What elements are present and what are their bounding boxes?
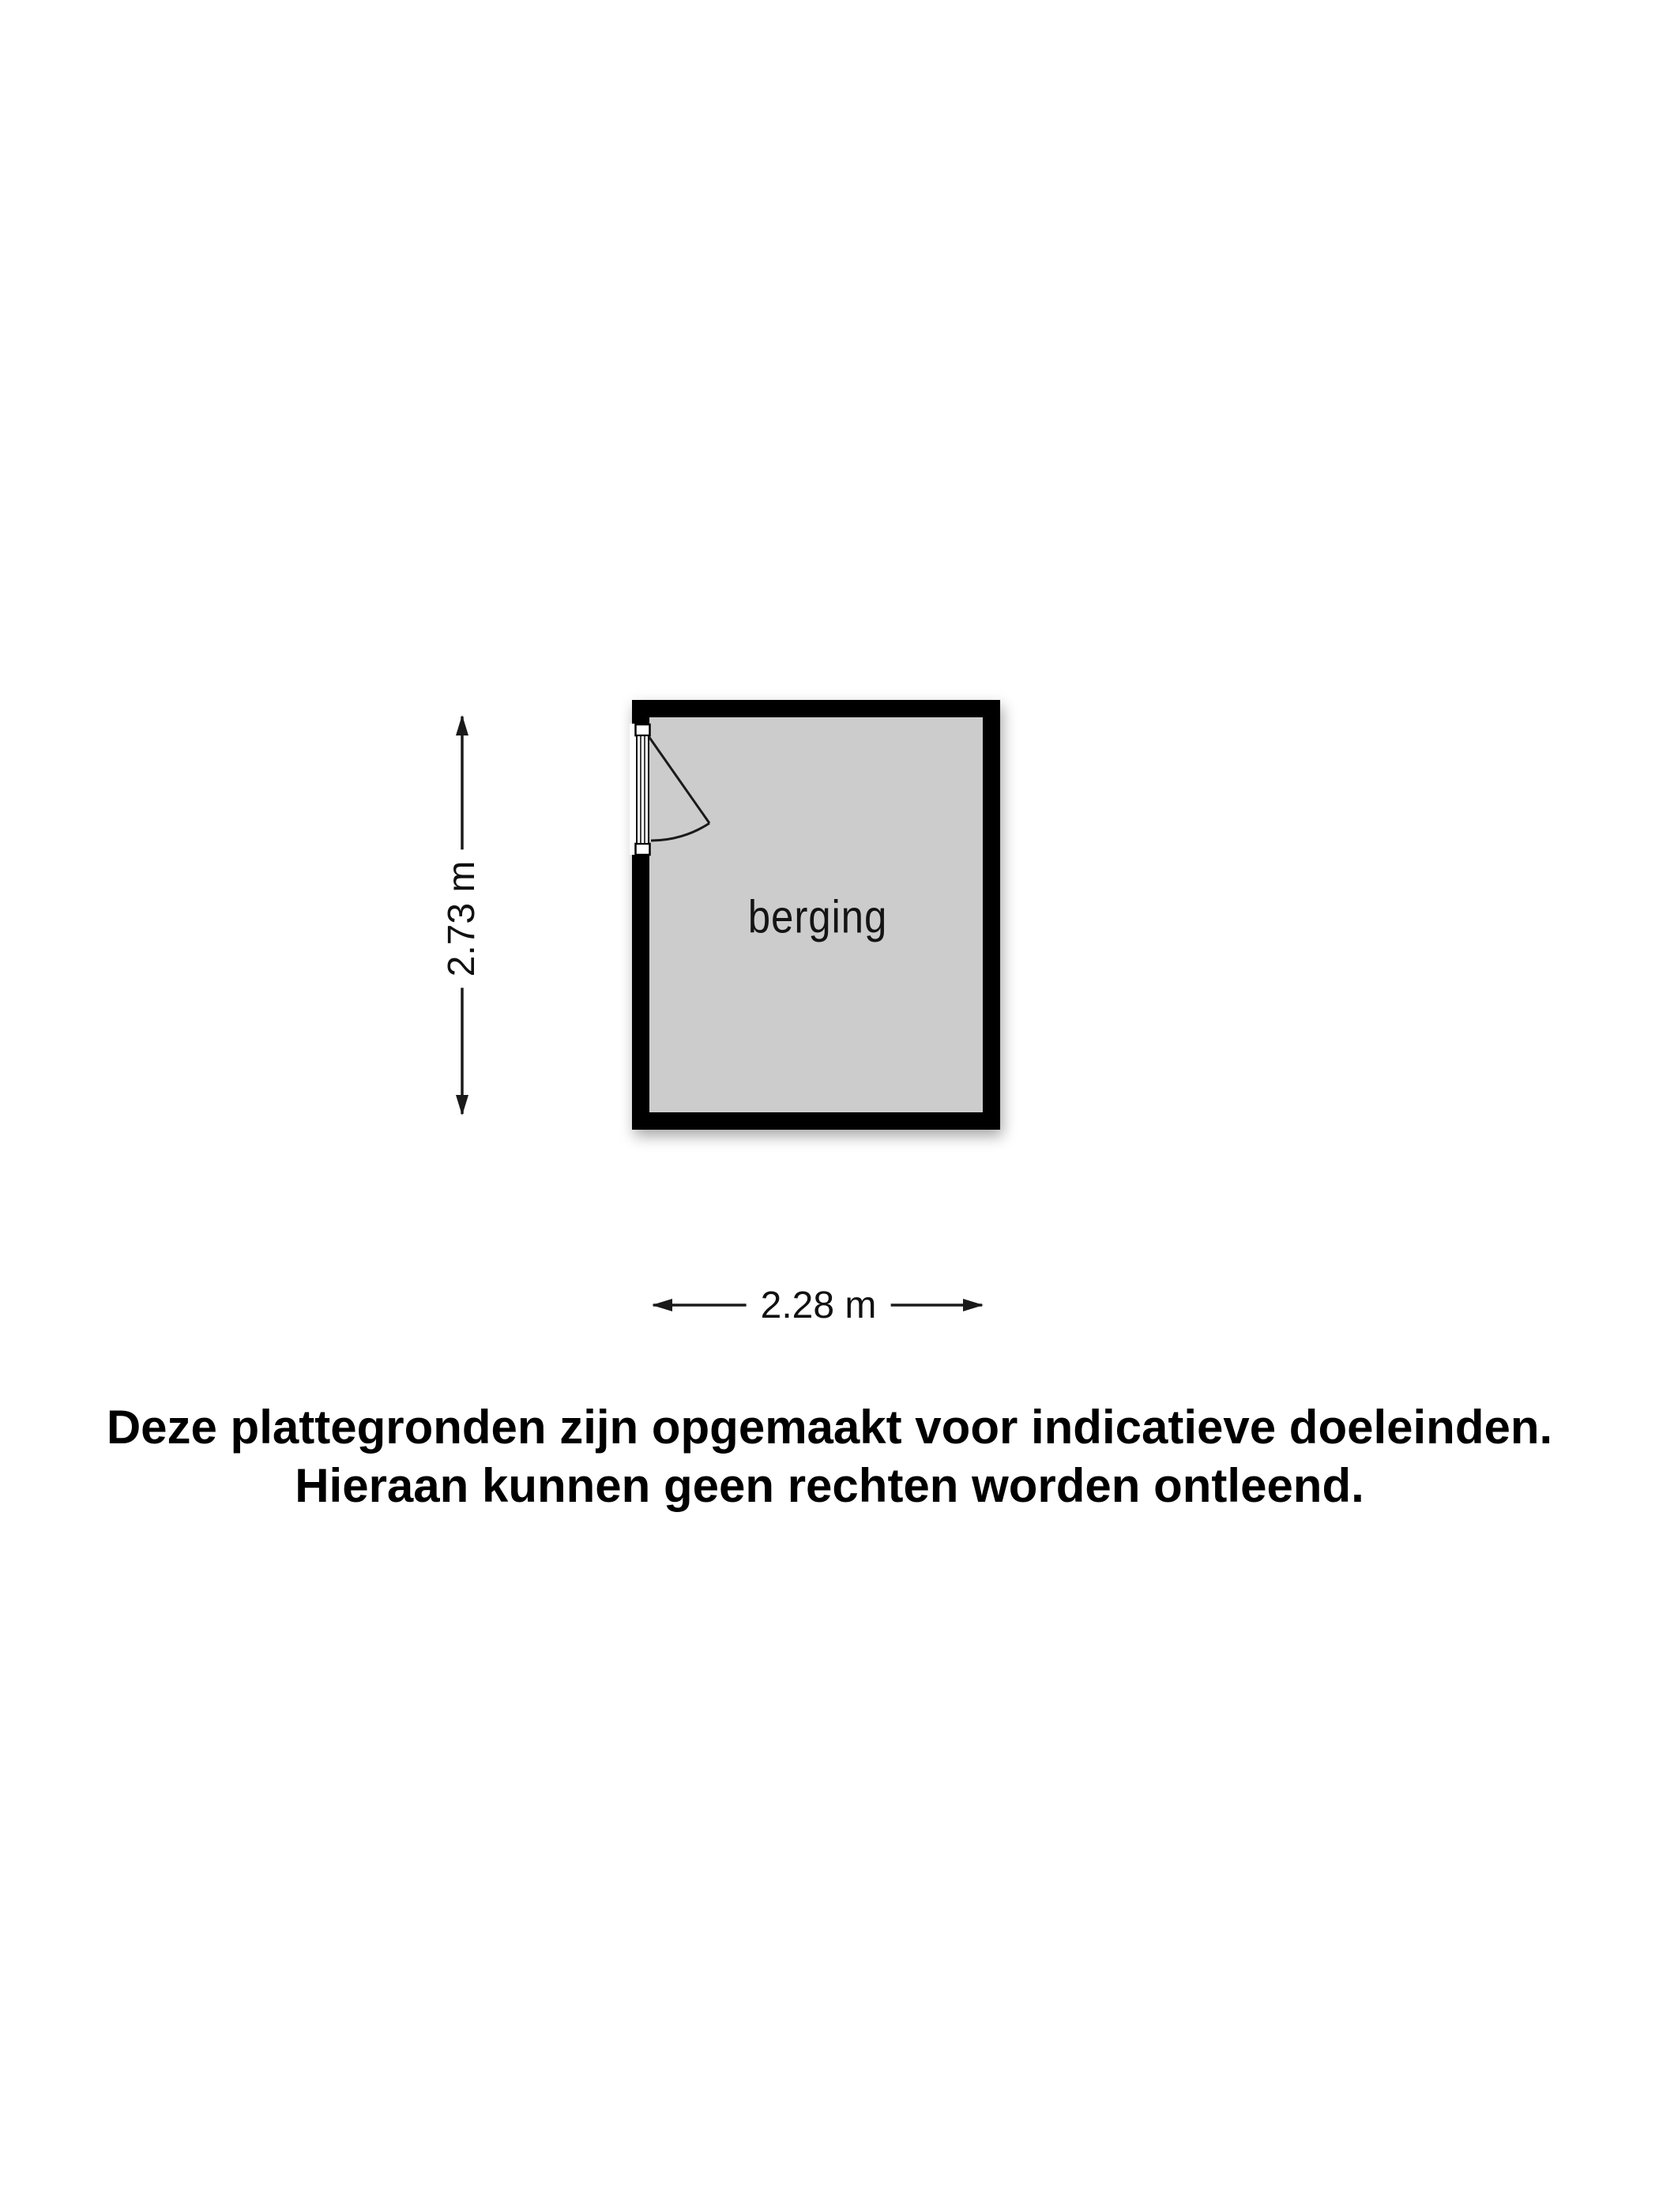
door-frame-strip <box>637 735 649 844</box>
door-jamb-top <box>636 724 650 735</box>
disclaimer-text: Deze plattegronden zijn opgemaakt voor i… <box>0 1398 1659 1515</box>
arrowhead-down-icon <box>456 1095 468 1115</box>
arrowhead-left-icon <box>652 1299 672 1311</box>
vertical-dimension-label: 2.73 m <box>442 850 483 988</box>
disclaimer-line-1: Deze plattegronden zijn opgemaakt voor i… <box>0 1398 1659 1457</box>
arrowhead-up-icon <box>456 715 468 735</box>
disclaimer-line-2: Hieraan kunnen geen rechten worden ontle… <box>0 1457 1659 1515</box>
floorplan-graphic <box>0 0 1659 2212</box>
room-label-berging: berging <box>748 891 887 944</box>
arrowhead-right-icon <box>963 1299 984 1311</box>
door-jamb-bottom <box>636 844 650 855</box>
horizontal-dimension-label: 2.28 m <box>747 1285 891 1326</box>
floorplan-page: berging 2.73 m 2.28 m Deze plattegronden… <box>0 0 1659 2212</box>
